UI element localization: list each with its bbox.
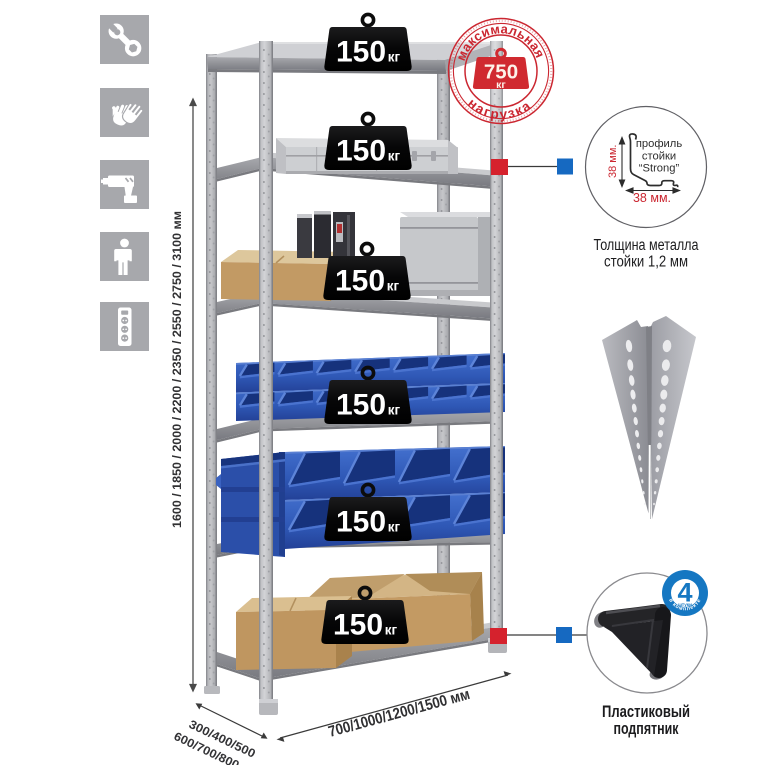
svg-text:700/1000/1200/1500 мм: 700/1000/1200/1500 мм [327,686,472,741]
svg-text:150: 150 [333,609,383,642]
svg-text:38 мм.: 38 мм. [607,145,619,178]
svg-text:кг: кг [388,403,401,418]
svg-text:кг: кг [496,79,506,91]
svg-text:150: 150 [336,36,386,69]
svg-text:150: 150 [336,389,386,422]
svg-text:кг: кг [388,149,401,164]
svg-text:Пластиковый: Пластиковый [602,703,690,721]
svg-text:1600 / 1850 / 2000 / 2200 / 23: 1600 / 1850 / 2000 / 2200 / 2350 / 2550 … [170,211,184,528]
svg-text:150: 150 [336,506,386,539]
svg-text:кг: кг [388,50,401,65]
svg-text:150: 150 [335,265,385,298]
svg-text:подпятник: подпятник [614,720,680,738]
svg-text:кг: кг [388,520,401,535]
svg-text:стойки 1,2 мм: стойки 1,2 мм [604,254,688,271]
svg-text:стойки: стойки [642,151,676,163]
svg-text:кг: кг [387,279,400,294]
svg-text:Толщина металла: Толщина металла [594,237,699,254]
svg-text:кг: кг [385,623,398,638]
svg-text:150: 150 [336,135,386,168]
svg-text:38 мм.: 38 мм. [633,191,671,205]
svg-text:профиль: профиль [636,138,682,150]
svg-text:“Strong”: “Strong” [639,163,680,175]
